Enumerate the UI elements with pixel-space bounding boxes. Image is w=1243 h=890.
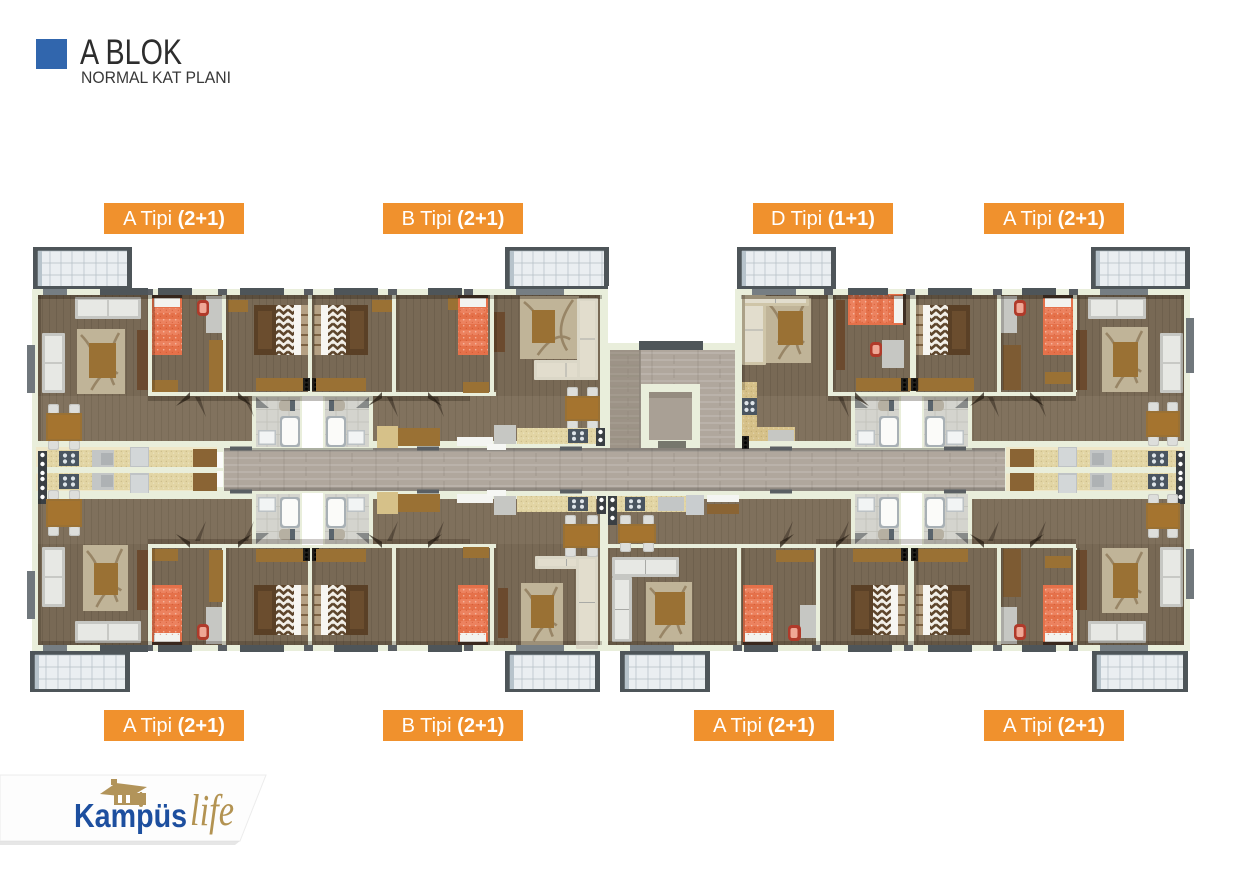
svg-text:A BLOK: A BLOK <box>80 33 182 72</box>
svg-text:life: life <box>190 786 234 835</box>
svg-text:NORMAL KAT PLANI: NORMAL KAT PLANI <box>81 69 231 87</box>
svg-text:A Tipi (2+1): A Tipi (2+1) <box>1003 208 1105 230</box>
svg-text:A Tipi (2+1): A Tipi (2+1) <box>713 715 815 737</box>
svg-text:B Tipi (2+1): B Tipi (2+1) <box>402 715 505 737</box>
svg-text:A Tipi (2+1): A Tipi (2+1) <box>1003 715 1105 737</box>
svg-text:A Tipi (2+1): A Tipi (2+1) <box>123 715 225 737</box>
svg-text:D Tipi (1+1): D Tipi (1+1) <box>771 208 875 230</box>
svg-text:B Tipi (2+1): B Tipi (2+1) <box>402 208 505 230</box>
svg-text:A Tipi (2+1): A Tipi (2+1) <box>123 208 225 230</box>
